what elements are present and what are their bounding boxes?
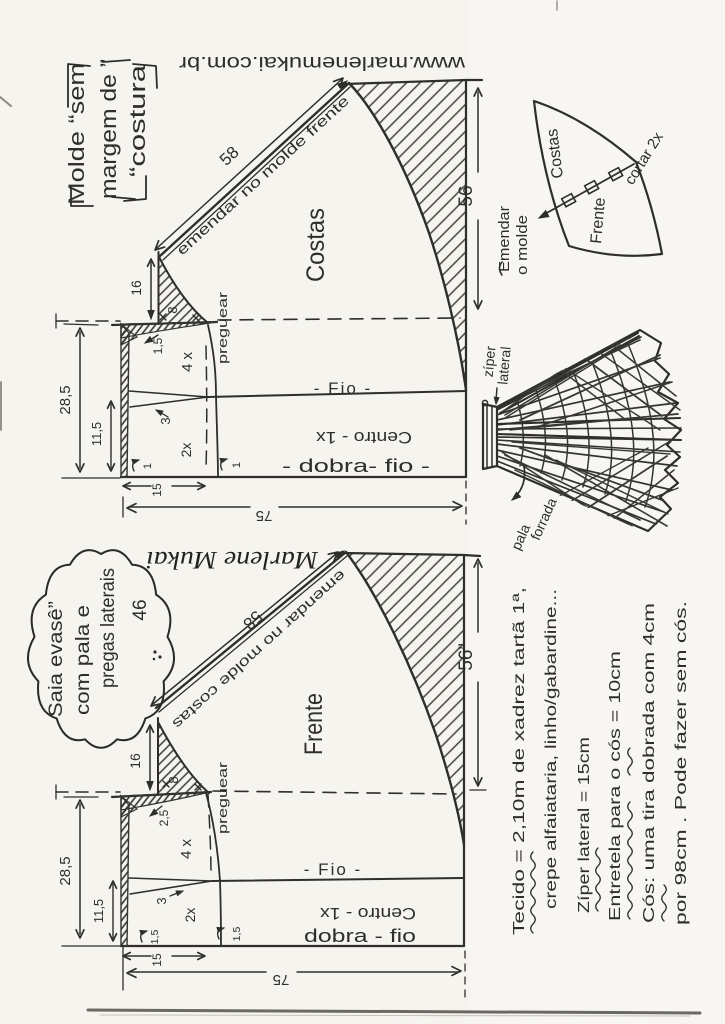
svg-text:- dobra- fio -: - dobra- fio - [282, 456, 430, 476]
svg-text:Centro - 1x: Centro - 1x [315, 428, 412, 447]
svg-text:75: 75 [256, 507, 273, 524]
svg-text:preguear: preguear [215, 761, 230, 834]
svg-text:1: 1 [231, 462, 243, 468]
svg-text:pregas laterais: pregas laterais [98, 568, 119, 688]
svg-text:8: 8 [165, 306, 180, 313]
svg-text:3: 3 [158, 417, 173, 424]
svg-text:- Fio -: - Fio - [304, 860, 362, 879]
svg-text:“costura: “costura [125, 64, 150, 177]
svg-text:o molde: o molde [515, 215, 531, 275]
svg-text:Saia evasê”: Saia evasê” [46, 601, 67, 717]
svg-text:Cós: uma tira dobrada com 4cm: Cós: uma tira dobrada com 4cm [641, 603, 658, 923]
svg-text:28,5: 28,5 [57, 856, 74, 885]
svg-text:crepe alfaiataria, linho/gabar: crepe alfaiataria, linho/gabardine... [543, 589, 560, 909]
svg-text:28,5: 28,5 [57, 385, 74, 414]
svg-text:Centro - 1x: Centro - 1x [319, 904, 416, 923]
svg-text:11,5: 11,5 [89, 422, 104, 446]
svg-text:- Fio -: - Fio - [314, 379, 372, 398]
svg-text:Tecido = 2,10m de xadrez tartã: Tecido = 2,10m de xadrez tartã 1ª, [511, 587, 528, 935]
svg-text:1,5: 1,5 [151, 337, 165, 354]
svg-text:2x: 2x [182, 908, 198, 923]
svg-text:75: 75 [273, 971, 290, 988]
svg-text:lateral: lateral [494, 346, 513, 385]
svg-text:Frente: Frente [300, 693, 328, 755]
svg-text:1: 1 [142, 463, 154, 469]
svg-text:15: 15 [150, 953, 164, 967]
svg-text:56: 56 [456, 185, 477, 206]
svg-text:Marlene Mukai: Marlene Mukai [146, 546, 319, 573]
svg-text:56”: 56” [456, 643, 477, 670]
svg-text:Entretela para o cós = 10cm: Entretela para o cós = 10cm [607, 651, 624, 921]
svg-text:11,5: 11,5 [91, 899, 106, 923]
svg-text:3: 3 [154, 897, 169, 904]
svg-text:1,5: 1,5 [231, 927, 243, 942]
svg-text:8: 8 [166, 776, 181, 783]
svg-text:4 x: 4 x [179, 351, 196, 372]
svg-text:Zíper lateral = 15cm: Zíper lateral = 15cm [576, 737, 593, 913]
svg-text:46: 46 [130, 599, 151, 620]
svg-text:www.marlenemukai.com.br: www.marlenemukai.com.br [178, 52, 466, 73]
svg-text:4 x: 4 x [178, 838, 195, 859]
svg-text:15: 15 [150, 483, 164, 497]
svg-text:dobra - fio: dobra - fio [304, 926, 416, 946]
svg-text:Costas: Costas [302, 208, 330, 282]
svg-text:1,5: 1,5 [149, 930, 161, 945]
svg-text:16: 16 [128, 280, 144, 296]
svg-text:2x: 2x [178, 443, 194, 458]
svg-text:16: 16 [127, 753, 143, 769]
svg-text:2,5: 2,5 [157, 809, 171, 826]
svg-text:com pala e: com pala e [73, 605, 94, 715]
svg-text:preguear: preguear [215, 291, 230, 364]
svg-text:margem de ”: margem de ” [96, 59, 121, 199]
svg-text:Emendar: Emendar [497, 206, 513, 272]
svg-text:por 98cm . Pode fazer sem cós.: por 98cm . Pode fazer sem cós. [673, 601, 690, 925]
